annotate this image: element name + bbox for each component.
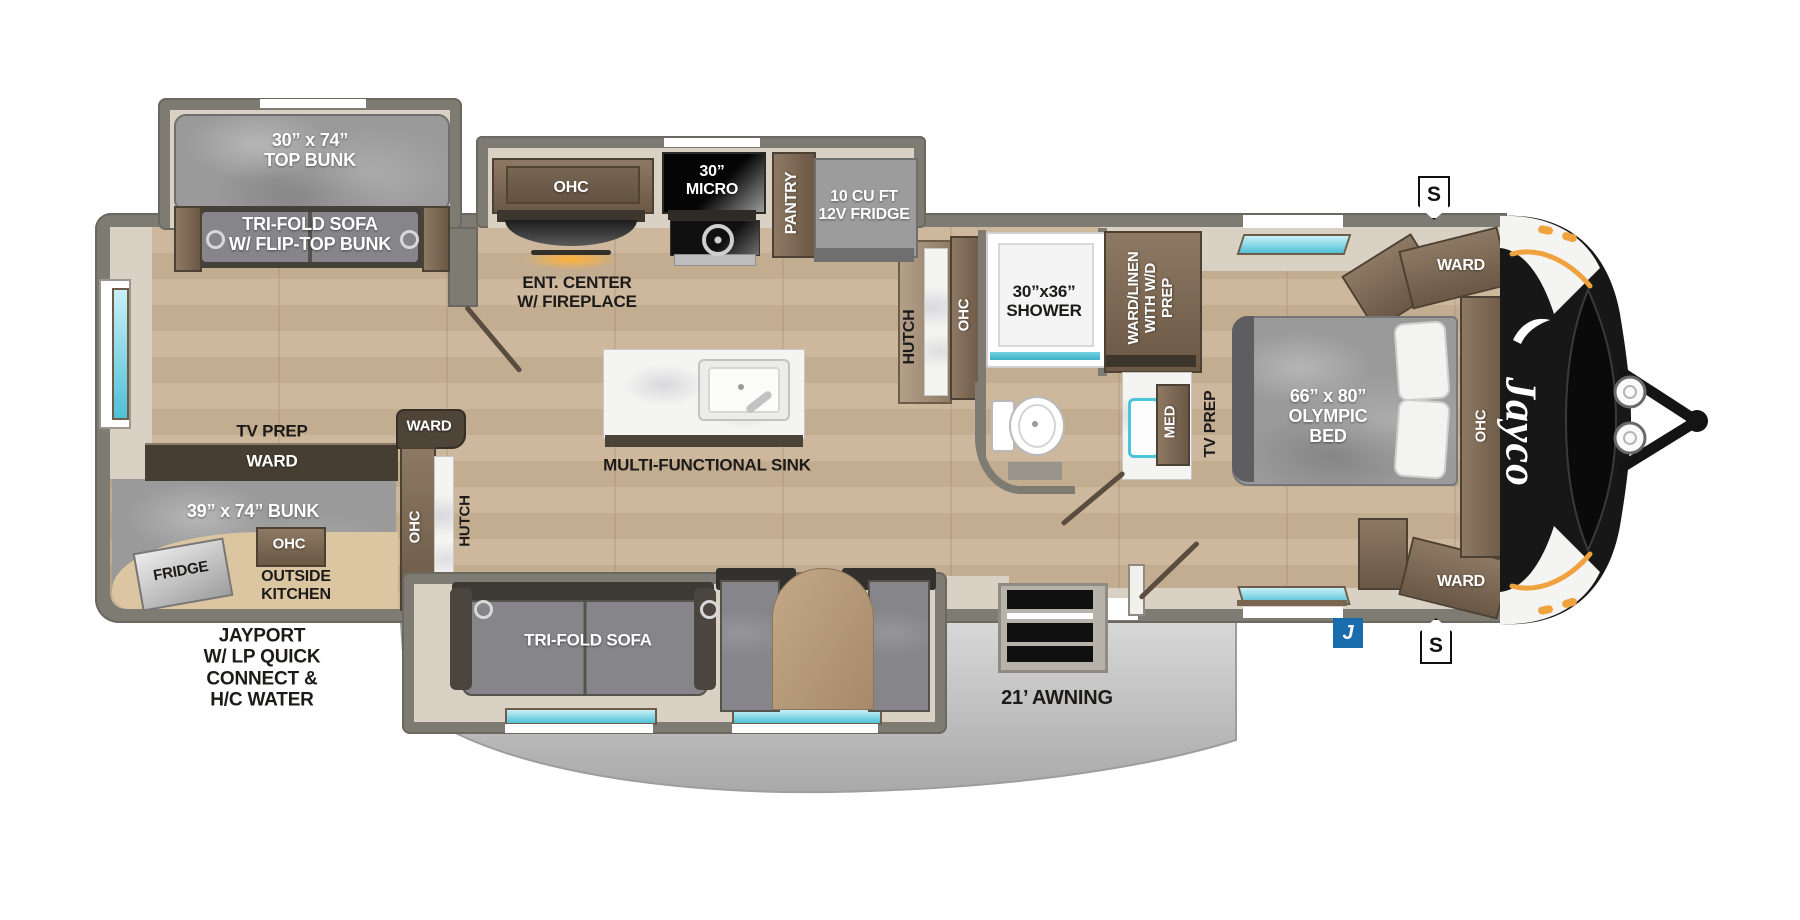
- bedroom-window-sill: [1237, 600, 1347, 606]
- dinette-seat-left: [720, 580, 780, 712]
- dinette-table: [772, 568, 874, 710]
- bath-step-platform: [1008, 462, 1062, 480]
- main-hutch-label: HUTCH: [901, 310, 919, 365]
- rear-tv-prep-label: TV PREP: [236, 421, 307, 440]
- jayport-label: JAYPORT W/ LP QUICK CONNECT & H/C WATER: [204, 625, 321, 710]
- slide-window-band-right: [732, 724, 878, 733]
- burner-icon: [702, 224, 734, 256]
- trifold-armrest-left: [450, 588, 472, 690]
- entry-door-slab: [1128, 564, 1145, 616]
- range-hood: [668, 210, 756, 220]
- slide-window-band-left: [505, 724, 653, 733]
- bed-foot-edge: [1232, 316, 1254, 482]
- bedroom-top-window-band: [1243, 215, 1343, 228]
- sofa-grommet-icon: [700, 600, 719, 619]
- ward-linen-base: [1106, 355, 1196, 367]
- floorplan-canvas: 30” x 74” TOP BUNK TRI-FOLD SOFA W/ FLIP…: [0, 0, 1800, 920]
- outside-kitchen-label: OUTSIDE KITCHEN: [261, 568, 331, 604]
- rear-room-wall-stub: [448, 227, 478, 307]
- fridge-base: [814, 248, 914, 262]
- sink-drain-icon: [738, 384, 744, 390]
- island-base: [605, 435, 803, 447]
- med-label: MED: [1163, 406, 1180, 439]
- ward-bed-top-label: WARD: [1437, 257, 1485, 275]
- flip-sofa-armrest-right: [422, 206, 450, 272]
- top-bunk-label: 30” x 74” TOP BUNK: [264, 130, 356, 170]
- pillow-icon: [1393, 320, 1450, 401]
- sofa-grommet-icon: [400, 230, 419, 249]
- bedroom-bottom-window-band: [1243, 607, 1343, 618]
- flip-sofa-armrest-left: [174, 206, 202, 272]
- trifold-sofa-label: TRI-FOLD SOFA: [524, 630, 652, 649]
- corner-ohc-label: OHC: [408, 511, 425, 544]
- j-badge: J: [1333, 618, 1363, 648]
- awning-label: 21’ AWNING: [1001, 687, 1113, 709]
- bedroom-tv-prep-label: TV PREP: [1202, 390, 1220, 457]
- main-hutch-counter: [924, 248, 948, 396]
- bunk-slide-window: [260, 99, 366, 108]
- slide-window-left: [505, 708, 657, 725]
- ent-center-label: ENT. CENTER W/ FIREPLACE: [517, 273, 636, 311]
- shower-threshold: [990, 352, 1100, 360]
- entry-steps: [998, 583, 1108, 673]
- ward-linen-label: WARD/LINEN WITH W/D PREP: [1126, 252, 1176, 345]
- nightstand-bottom: [1358, 518, 1408, 590]
- fridge-12v-label: 10 CU FT 12V FRIDGE: [818, 188, 909, 224]
- ward-bed-bottom-label: WARD: [1437, 573, 1485, 591]
- bath-ohc-label: OHC: [957, 299, 974, 332]
- fireplace-hearth: [531, 250, 611, 255]
- bunk-39-label: 39” x 74” BUNK: [187, 501, 319, 521]
- rear-window: [112, 288, 129, 420]
- sofa-grommet-icon: [474, 600, 493, 619]
- sofa-grommet-icon: [206, 230, 225, 249]
- sink-basin: [708, 367, 780, 413]
- bedroom-top-window: [1237, 234, 1352, 255]
- rear-hutch-label: HUTCH: [458, 495, 475, 547]
- toilet-flush-icon: [1032, 421, 1038, 427]
- kitchen-window: [664, 138, 760, 147]
- pillow-icon: [1393, 398, 1450, 479]
- shower-label: 30”x36” SHOWER: [1006, 282, 1081, 320]
- bed-ohc-label: OHC: [1474, 410, 1491, 443]
- rear-ward-label: WARD: [246, 451, 297, 470]
- microwave-label: 30” MICRO: [686, 163, 738, 199]
- jayco-logo: Jayco: [1496, 377, 1547, 487]
- bed-label: 66” x 80” OLYMPIC BED: [1289, 386, 1368, 446]
- outside-ohc-label: OHC: [273, 537, 306, 554]
- trifold-flip-bunk-label: TRI-FOLD SOFA W/ FLIP-TOP BUNK: [229, 214, 391, 254]
- pantry-label: PANTRY: [783, 172, 801, 235]
- dinette-seat-right: [868, 580, 930, 712]
- corner-ward-label: WARD: [406, 419, 451, 436]
- ent-ohc-label: OHC: [554, 179, 589, 197]
- sink-label: MULTI-FUNCTIONAL SINK: [603, 455, 811, 474]
